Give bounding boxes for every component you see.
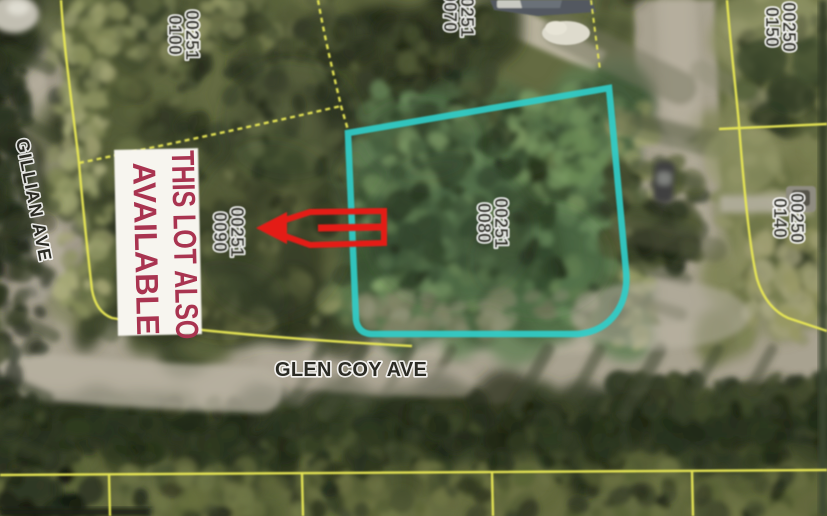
- svg-text:0100: 0100: [165, 15, 185, 55]
- svg-text:0150: 0150: [762, 7, 782, 47]
- svg-text:0070: 0070: [440, 0, 460, 32]
- svg-text:0090: 0090: [210, 212, 230, 252]
- svg-text:0140: 0140: [770, 198, 790, 238]
- svg-text:THIS LOT ALSO: THIS LOT ALSO: [164, 150, 204, 340]
- svg-text:GLEN COY AVE: GLEN COY AVE: [275, 359, 427, 381]
- svg-text:0080: 0080: [474, 203, 494, 243]
- svg-text:AVAILABLE: AVAILABLE: [126, 162, 167, 336]
